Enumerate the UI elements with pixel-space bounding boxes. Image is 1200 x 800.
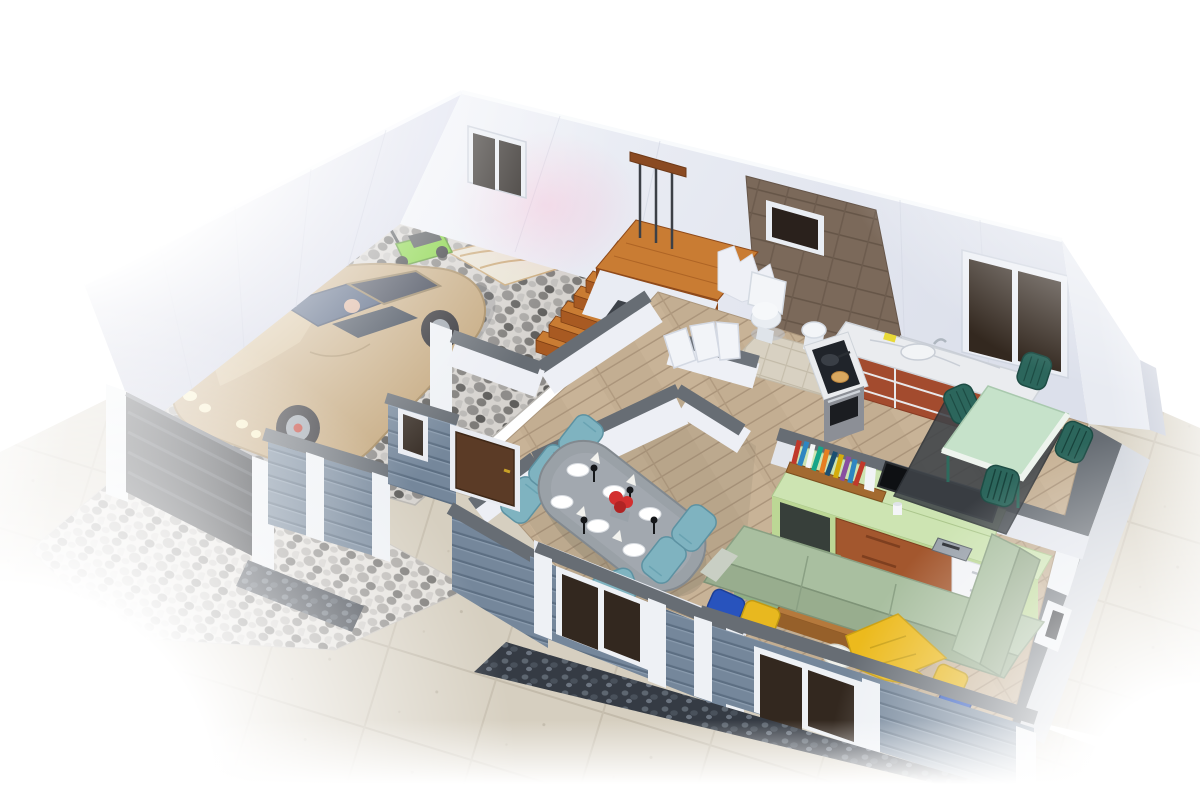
door-handle	[504, 470, 510, 472]
gate-post	[106, 384, 128, 502]
floorplan-render	[0, 0, 1200, 800]
headlight	[251, 430, 261, 438]
door-leaf	[716, 322, 740, 360]
toilet-lid	[752, 302, 778, 320]
mower-wheel	[436, 246, 448, 258]
kitchen-sink	[901, 344, 935, 360]
pilaster	[534, 552, 552, 640]
car-driver	[344, 299, 360, 313]
pilaster	[648, 598, 666, 688]
headlight	[236, 420, 248, 429]
pilaster	[1016, 726, 1036, 800]
pilaster	[372, 472, 390, 562]
mug	[893, 502, 902, 515]
pancake-plate	[832, 372, 849, 383]
sidelight-window	[398, 408, 428, 462]
plate	[587, 520, 609, 533]
window-pane	[499, 140, 521, 196]
plate	[623, 544, 645, 557]
flower	[614, 501, 626, 513]
floorplan-svg	[0, 0, 1200, 800]
plate	[639, 508, 661, 521]
toilet	[748, 272, 786, 344]
window-pane	[969, 259, 1012, 362]
pilaster	[306, 452, 324, 542]
mug-top	[893, 502, 902, 506]
headlight	[199, 404, 211, 413]
window-pane	[403, 414, 423, 456]
sink-basin	[802, 322, 826, 338]
pan	[821, 354, 839, 366]
brake-hub	[294, 424, 303, 433]
plate	[567, 464, 589, 477]
bookend	[864, 466, 876, 492]
pilaster	[694, 616, 712, 702]
plate	[551, 496, 573, 509]
window-pane	[473, 133, 495, 190]
